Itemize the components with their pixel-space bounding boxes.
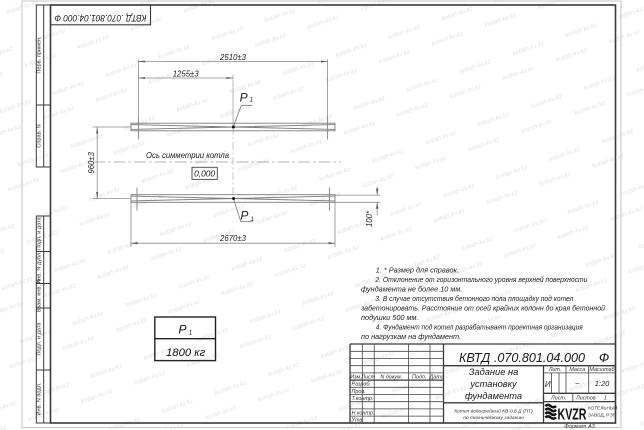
svg-text:2510±3: 2510±3	[219, 53, 247, 62]
svg-text:Масса: Масса	[569, 367, 585, 373]
svg-text:Утв.: Утв.	[351, 418, 364, 424]
svg-text:Ось симметрии котла: Ось симметрии котла	[146, 150, 229, 160]
svg-text:1255±3: 1255±3	[173, 69, 200, 78]
svg-text:Формат А3: Формат А3	[564, 424, 595, 430]
svg-text:Листов: Листов	[575, 396, 596, 402]
svg-text:N докум.: N докум.	[380, 374, 402, 380]
svg-text:Подп. и дата: Подп. и дата	[37, 322, 43, 356]
svg-text:P: P	[240, 91, 248, 105]
svg-text:–: –	[574, 379, 580, 388]
svg-text:Масштаб: Масштаб	[589, 367, 615, 373]
svg-text:Лист.: Лист.	[550, 396, 566, 402]
svg-text:Ф: Ф	[599, 350, 609, 365]
svg-text:2670±3: 2670±3	[219, 234, 247, 243]
svg-text:1:20: 1:20	[595, 379, 610, 388]
svg-text:1. * Размер для справок.: 1. * Размер для справок.	[376, 266, 459, 275]
svg-text:Инв. N подл.: Инв. N подл.	[37, 382, 43, 415]
svg-text:Справ. N: Справ. N	[37, 124, 43, 147]
svg-text:KVZR: KVZR	[558, 407, 587, 424]
svg-text:установку: установку	[469, 379, 518, 389]
svg-text:2. Отклонение от горизонтально: 2. Отклонение от горизонтального уровня …	[374, 275, 587, 284]
svg-text:Взам. инв. N: Взам. инв. N	[37, 279, 43, 312]
svg-text:Котел водогрейный КВ-0,8 Д (П: Котел водогрейный КВ-0,8 Д (ПТ)	[454, 407, 533, 414]
svg-text:1800 кг: 1800 кг	[166, 347, 206, 359]
svg-text:Инв. N дубл.: Инв. N дубл.	[37, 251, 43, 284]
svg-text:1: 1	[604, 396, 607, 402]
svg-text:ЗАВОД, РЭП: ЗАВОД, РЭП	[588, 413, 616, 418]
svg-text:Т.контр.: Т.контр.	[352, 396, 374, 402]
svg-text:1: 1	[189, 330, 193, 337]
svg-text:0,000: 0,000	[194, 168, 215, 178]
svg-text:КВТД .070.801.04.000: КВТД .070.801.04.000	[459, 350, 586, 365]
svg-text:забетонировать. Расстояние от: забетонировать. Расстояние от осей крайн…	[360, 304, 605, 313]
svg-text:Лит.: Лит.	[548, 367, 562, 373]
svg-text:КВТД .070.801.04.000 Ф: КВТД .070.801.04.000 Ф	[54, 12, 146, 23]
svg-text:Перв. примен.: Перв. примен.	[37, 36, 43, 74]
svg-text:по техническому заданию: по техническому заданию	[463, 415, 524, 421]
svg-text:100*: 100*	[365, 210, 374, 227]
svg-text:Лист: Лист	[360, 374, 375, 380]
svg-text:3. В случае отсутствия бетонно: 3. В случае отсутствия бетонного пола пл…	[375, 294, 573, 303]
svg-text:Подп. и дата: Подп. и дата	[37, 216, 43, 250]
svg-text:фундамента: фундамента	[465, 391, 522, 401]
svg-text:подушки 500 мм.: подушки 500 мм.	[361, 313, 419, 322]
svg-text:Подп.: Подп.	[412, 374, 426, 380]
svg-text:Изм.: Изм.	[350, 374, 362, 380]
svg-text:Дата: Дата	[429, 374, 444, 380]
svg-text:P: P	[179, 323, 187, 337]
svg-text:P: P	[240, 209, 248, 223]
svg-text:1: 1	[250, 216, 254, 223]
svg-text:фундамента не более 10 мм.: фундамента не более 10 мм.	[361, 285, 462, 294]
svg-text:Разраб.: Разраб.	[352, 382, 372, 388]
svg-text:по нагрузкам на фундамент.: по нагрузкам на фундамент.	[361, 332, 461, 341]
svg-text:И: И	[545, 380, 551, 389]
svg-text:Пров.: Пров.	[352, 389, 366, 395]
svg-text:Н.контр.: Н.контр.	[352, 410, 375, 416]
svg-text:4. Фундамент под котел разраба: 4. Фундамент под котел разрабатывает про…	[376, 323, 583, 332]
svg-text:1: 1	[250, 96, 254, 103]
svg-text:960±3: 960±3	[87, 151, 96, 173]
svg-text:Задание на: Задание на	[469, 367, 519, 377]
svg-text:КОТЕЛЬНЫЙ: КОТЕЛЬНЫЙ	[588, 404, 617, 411]
